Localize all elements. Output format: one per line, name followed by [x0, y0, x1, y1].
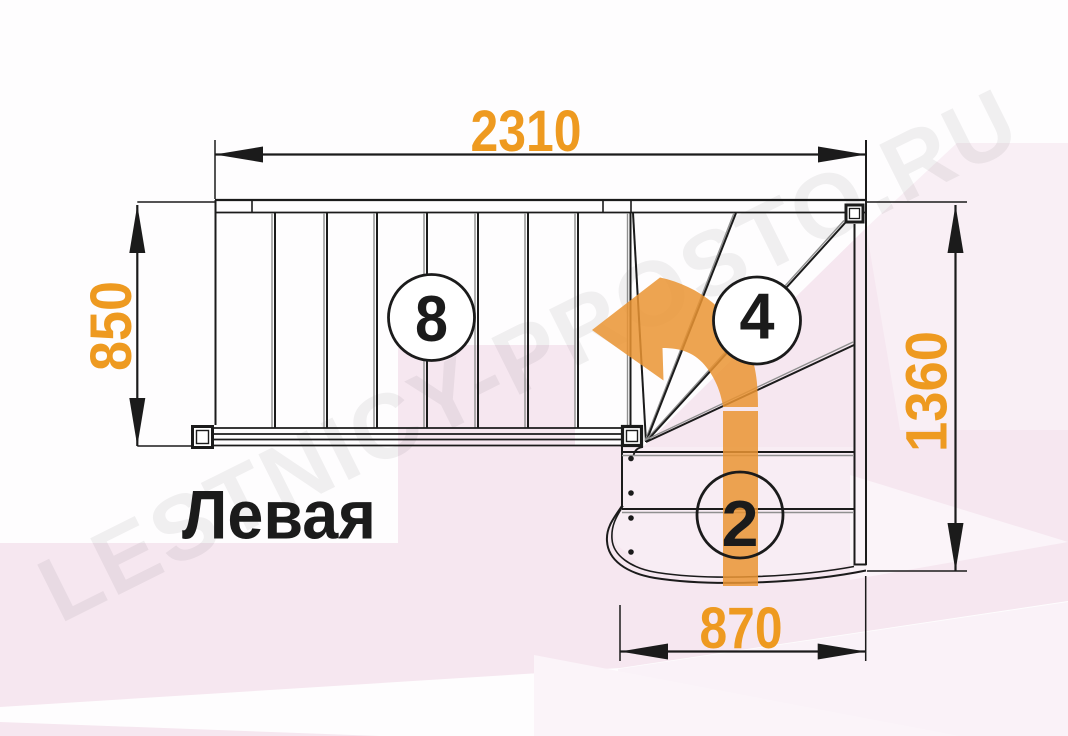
svg-text:Левая: Левая: [182, 477, 376, 554]
svg-text:850: 850: [79, 281, 144, 371]
svg-text:8: 8: [415, 282, 448, 355]
svg-text:870: 870: [700, 596, 783, 661]
svg-text:1360: 1360: [895, 331, 960, 452]
svg-text:2: 2: [722, 487, 759, 560]
svg-text:4: 4: [740, 280, 775, 353]
svg-text:2310: 2310: [471, 99, 582, 164]
